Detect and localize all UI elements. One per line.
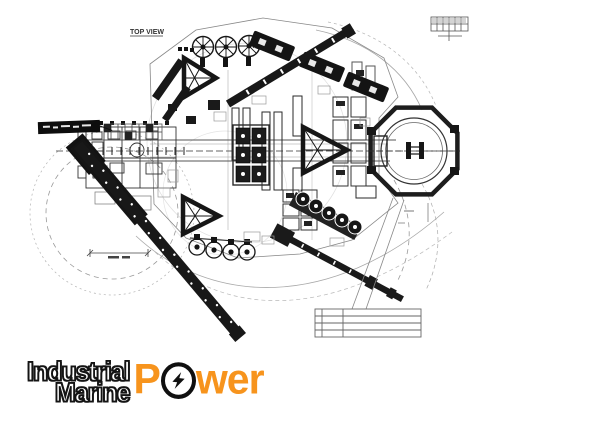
right-equipment-grid — [333, 97, 366, 186]
crane-boom-lower-right — [270, 223, 406, 306]
screenshot-root: TOP VIEW — [0, 0, 600, 423]
deckhouse-roof-ticks — [88, 121, 169, 125]
logo-line-marine: Marine — [55, 382, 130, 405]
logo-words: Industrial Marine — [27, 362, 130, 404]
bottom-tanks — [189, 234, 255, 260]
right-tick-mark — [398, 203, 428, 224]
top-view-label: TOP VIEW — [130, 29, 164, 36]
lightning-bolt-icon — [161, 362, 196, 399]
logo-word-power: P wer — [134, 358, 264, 400]
bom-table — [315, 309, 421, 337]
engine-row — [289, 192, 362, 240]
mini-title-block — [431, 17, 468, 41]
power-letters-wer: wer — [196, 358, 264, 400]
power-letter-p: P — [134, 358, 160, 400]
dimension-line — [87, 249, 151, 259]
company-logo: Industrial Marine P wer — [27, 362, 264, 404]
truss-bottom-center — [183, 197, 219, 234]
roof-hatch-strip — [104, 124, 162, 140]
